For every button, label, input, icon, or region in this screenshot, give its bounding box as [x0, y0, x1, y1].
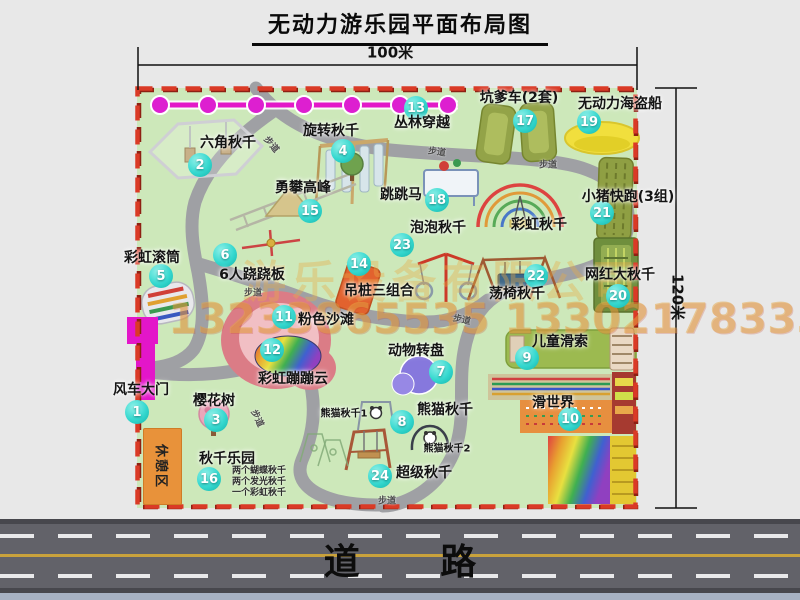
marker-sakura-tree: 3 [204, 408, 228, 432]
marker-pink-beach: 11 [272, 305, 296, 329]
label-panda-swing: 熊猫秋千 [417, 399, 473, 419]
marker-rainbow-roller: 5 [149, 264, 173, 288]
rest-area-label: 休憩区 [153, 444, 172, 489]
marker-climbing-peak: 15 [298, 199, 322, 223]
label-post-combo: 吊桩三组合 [344, 280, 414, 300]
swing-paradise-notes: 两个蝴蝶秋千 两个发光秋千 一个彩虹秋千 [232, 466, 286, 499]
label-chair-swing: 荡椅秋千 [489, 283, 545, 303]
label-rotary-swing: 旋转秋千 [303, 120, 359, 140]
label-windmill-gate: 风车大门 [113, 379, 169, 399]
label-kids-zipline: 儿童滑索 [532, 331, 588, 351]
label-jumping-horse: 跳跳马 [380, 184, 422, 204]
rest-area-zone: 休憩区 [143, 428, 182, 505]
label-pirate-ship: 无动力海盗船 [578, 93, 662, 113]
trail-label: 步道 [427, 143, 447, 158]
dimension-width-label: 100米 [367, 42, 413, 63]
note-line: 两个蝴蝶秋千 [232, 466, 286, 477]
marker-rainbow-cloud: 12 [260, 338, 284, 362]
label-viral-big-swing: 网红大秋千 [585, 264, 655, 284]
label-animal-carousel: 动物转盘 [388, 340, 444, 360]
label-piggy-run: 小猪快跑(3组) [582, 186, 675, 206]
label-rainbow-swing: 彩虹秋千 [511, 214, 567, 234]
label-panda-swing-1: 熊猫秋千1 [321, 405, 368, 420]
note-line: 两个发光秋千 [232, 477, 286, 488]
label-sakura-tree: 樱花树 [193, 390, 235, 410]
trail-label: 步道 [378, 494, 396, 507]
label-panda-swing-2: 熊猫秋千2 [424, 440, 471, 455]
label-pit-kart: 坑爹车(2套) [480, 87, 559, 107]
marker-viral-big-swing: 20 [606, 284, 630, 308]
road: 道 路 [0, 519, 800, 593]
label-slide-world: 滑世界 [532, 392, 574, 412]
marker-pit-kart: 17 [513, 109, 537, 133]
marker-super-swing: 24 [368, 464, 392, 488]
label-super-swing: 超级秋千 [396, 462, 452, 482]
dimension-height-label: 120米 [668, 274, 689, 320]
page-title: 无动力游乐园平面布局图 [252, 7, 548, 46]
pirate-ship-structure [565, 122, 639, 154]
marker-windmill-gate: 1 [125, 400, 149, 424]
marker-panda-swing: 8 [390, 410, 414, 434]
marker-rotary-swing: 4 [331, 139, 355, 163]
marker-post-combo: 14 [347, 252, 371, 276]
label-pink-beach: 粉色沙滩 [298, 309, 354, 329]
marker-pirate-ship: 19 [577, 110, 601, 134]
label-seesaw-6p: 6人跷跷板 [219, 264, 285, 284]
marker-hex-swing: 2 [188, 153, 212, 177]
label-rainbow-roller: 彩虹滚筒 [124, 247, 180, 267]
label-bubble-swing: 泡泡秋千 [410, 217, 466, 237]
marker-swing-paradise: 16 [197, 467, 221, 491]
label-swing-paradise: 秋千乐园 [199, 448, 255, 468]
label-rainbow-cloud: 彩虹蹦蹦云 [258, 368, 328, 388]
label-climbing-peak: 勇攀高峰 [275, 177, 331, 197]
park-map-poster: 无动力游乐园平面布局图 100米 120米 游乐设备有限公司 132338655… [0, 0, 800, 600]
marker-jumping-horse: 18 [425, 188, 449, 212]
label-hex-swing: 六角秋千 [200, 132, 256, 152]
trail-label: 步道 [244, 286, 262, 299]
marker-animal-carousel: 7 [429, 360, 453, 384]
label-jungle-crossing: 丛林穿越 [394, 112, 450, 132]
trail-label: 步道 [539, 158, 557, 171]
road-label: 道 路 [0, 533, 800, 585]
note-line: 一个彩虹秋千 [232, 488, 286, 499]
